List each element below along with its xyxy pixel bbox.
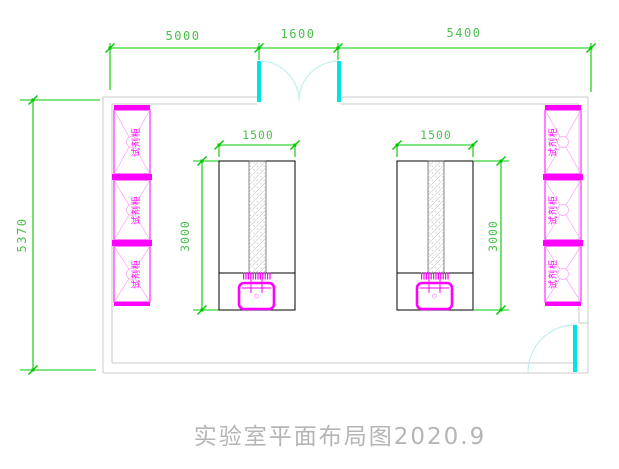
bench-right-width-value: 1500 xyxy=(420,128,452,142)
bench-left-depth-value: 3000 xyxy=(178,220,192,252)
lab-bench-left xyxy=(219,161,295,310)
cabinet-right-bar-2 xyxy=(543,240,583,246)
reagent-cabinet-right-3: 试剂柜 xyxy=(545,246,581,302)
cabinet-left-bar-2 xyxy=(112,240,152,246)
dimension-value-left-height: 5370 xyxy=(15,218,29,253)
cabinet-knob xyxy=(558,205,569,216)
reagent-cabinet-left-1: 试剂柜 xyxy=(114,110,150,174)
door-leaf-right xyxy=(337,61,341,102)
cabinet-right-bar-1 xyxy=(543,174,583,180)
cabinet-label: 试剂柜 xyxy=(130,259,142,289)
single-door-bottom-right xyxy=(528,325,577,372)
reagent-cabinet-right-2: 试剂柜 xyxy=(545,180,581,240)
cabinet-knob xyxy=(558,269,569,280)
bench-right-width-dim-line xyxy=(397,145,473,157)
reagent-cabinets-left: 试剂柜 试剂柜 试剂柜 xyxy=(112,105,152,306)
drawing-title: 实验室平面布局图2020.9 xyxy=(194,424,486,450)
bench-left-depth-dim-line xyxy=(193,161,219,310)
double-door-top xyxy=(257,61,341,102)
door-leaf-left xyxy=(257,61,261,102)
bench-right-reagent-strip xyxy=(428,161,444,273)
bench-left-reagent-strip xyxy=(249,161,266,273)
cabinet-left-bottom-cap xyxy=(114,302,150,306)
reagent-cabinet-right-1: 试剂柜 xyxy=(545,110,581,174)
door-leaf xyxy=(573,325,577,372)
reagent-cabinet-left-3: 试剂柜 xyxy=(114,246,150,302)
door-swing-arc-right xyxy=(299,61,339,101)
reagent-cabinets-right: 试剂柜 试剂柜 试剂柜 xyxy=(543,105,583,306)
dimension-top: 5000 1600 5400 xyxy=(106,26,596,92)
bench-right-depth-value: 3000 xyxy=(486,220,500,252)
bench-left-width-value: 1500 xyxy=(242,128,274,142)
lab-bench-right xyxy=(397,161,473,310)
cabinet-label: 试剂柜 xyxy=(547,127,559,157)
reagent-cabinet-left-2: 试剂柜 xyxy=(114,180,150,240)
dimension-extension-lines-top xyxy=(110,43,591,92)
dimension-value-top-right: 5400 xyxy=(447,26,482,40)
cabinet-knob xyxy=(558,137,569,148)
room-walls xyxy=(103,97,588,373)
door-swing-arc-left xyxy=(259,61,299,101)
door-swing-arc xyxy=(528,325,575,372)
dimension-value-top-middle: 1600 xyxy=(281,27,316,41)
floor-plan-canvas: 5000 1600 5400 5370 1500 3000 1500 3000 xyxy=(0,0,619,469)
bench-left-width-dim-line xyxy=(219,145,295,157)
cabinet-right-bottom-cap xyxy=(545,302,581,306)
floor-plan-drawing: 5000 1600 5400 5370 1500 3000 1500 3000 xyxy=(0,0,619,469)
cabinet-left-top-cap xyxy=(114,105,150,110)
cabinet-right-top-cap xyxy=(545,105,581,110)
dimension-value-top-left: 5000 xyxy=(166,29,201,43)
cabinet-left-bar-1 xyxy=(112,174,152,180)
cabinet-label: 试剂柜 xyxy=(547,195,559,225)
dimension-left: 5370 xyxy=(15,96,100,375)
cabinet-label: 试剂柜 xyxy=(130,127,142,157)
cabinet-label: 试剂柜 xyxy=(547,259,559,289)
dimension-extension-lines-left xyxy=(20,100,100,370)
cabinet-label: 试剂柜 xyxy=(130,195,142,225)
